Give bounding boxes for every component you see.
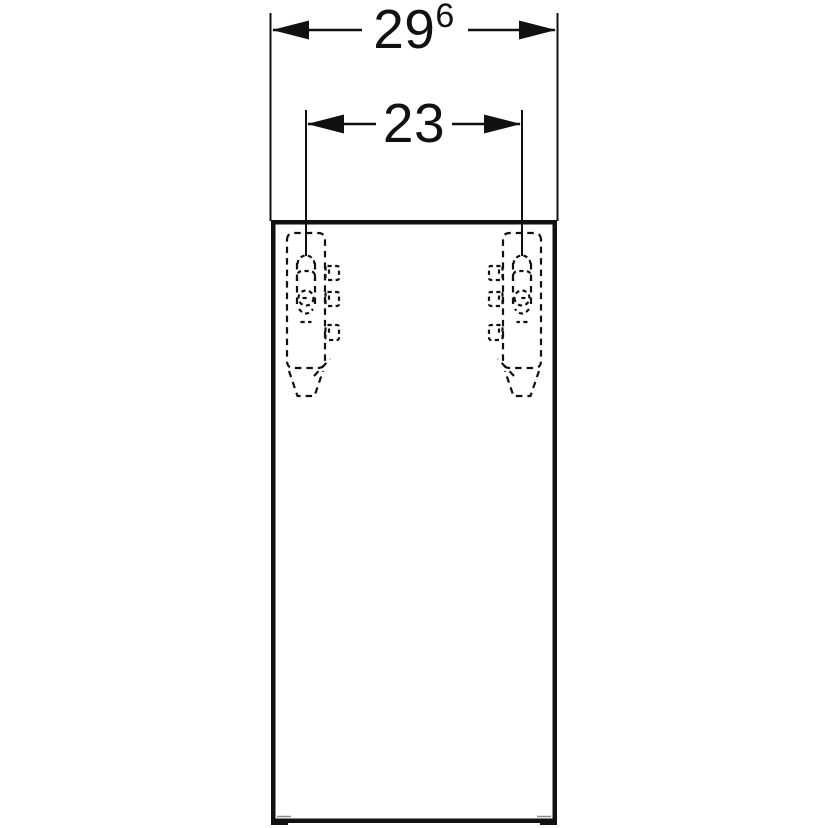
bracket-tail — [289, 371, 323, 396]
bracket-corner-tick — [314, 359, 330, 376]
arrowhead-right-icon — [484, 115, 521, 134]
fixing-tab — [326, 325, 340, 340]
cabinet-foot-left — [271, 820, 288, 826]
fixing-tabs — [326, 266, 340, 340]
wall-bracket-right — [489, 233, 541, 396]
hook-arc — [298, 256, 315, 264]
wall-bracket-left — [287, 233, 339, 396]
dimension-drawing: 296 23 — [0, 0, 828, 828]
fixing-tab — [326, 292, 340, 306]
arrowhead-left-icon — [307, 115, 344, 134]
overall-width-label: 296 — [373, 0, 455, 60]
dimension-bracket-spacing: 23 — [306, 92, 522, 256]
slide-arch — [297, 271, 315, 281]
cabinet-foot-right — [540, 820, 557, 826]
slide-under-arc — [299, 309, 313, 314]
arrowhead-left-icon — [272, 21, 309, 40]
bracket-spacing-label: 23 — [383, 92, 445, 154]
cabinet-body — [271, 222, 557, 825]
technical-drawing-canvas: 296 23 — [0, 0, 828, 828]
fixing-tab — [326, 266, 340, 280]
cabinet-outline — [273, 222, 555, 821]
overall-width-superscript: 6 — [435, 0, 454, 35]
overall-width-value: 29 — [373, 0, 435, 60]
arrowhead-right-icon — [519, 21, 556, 40]
